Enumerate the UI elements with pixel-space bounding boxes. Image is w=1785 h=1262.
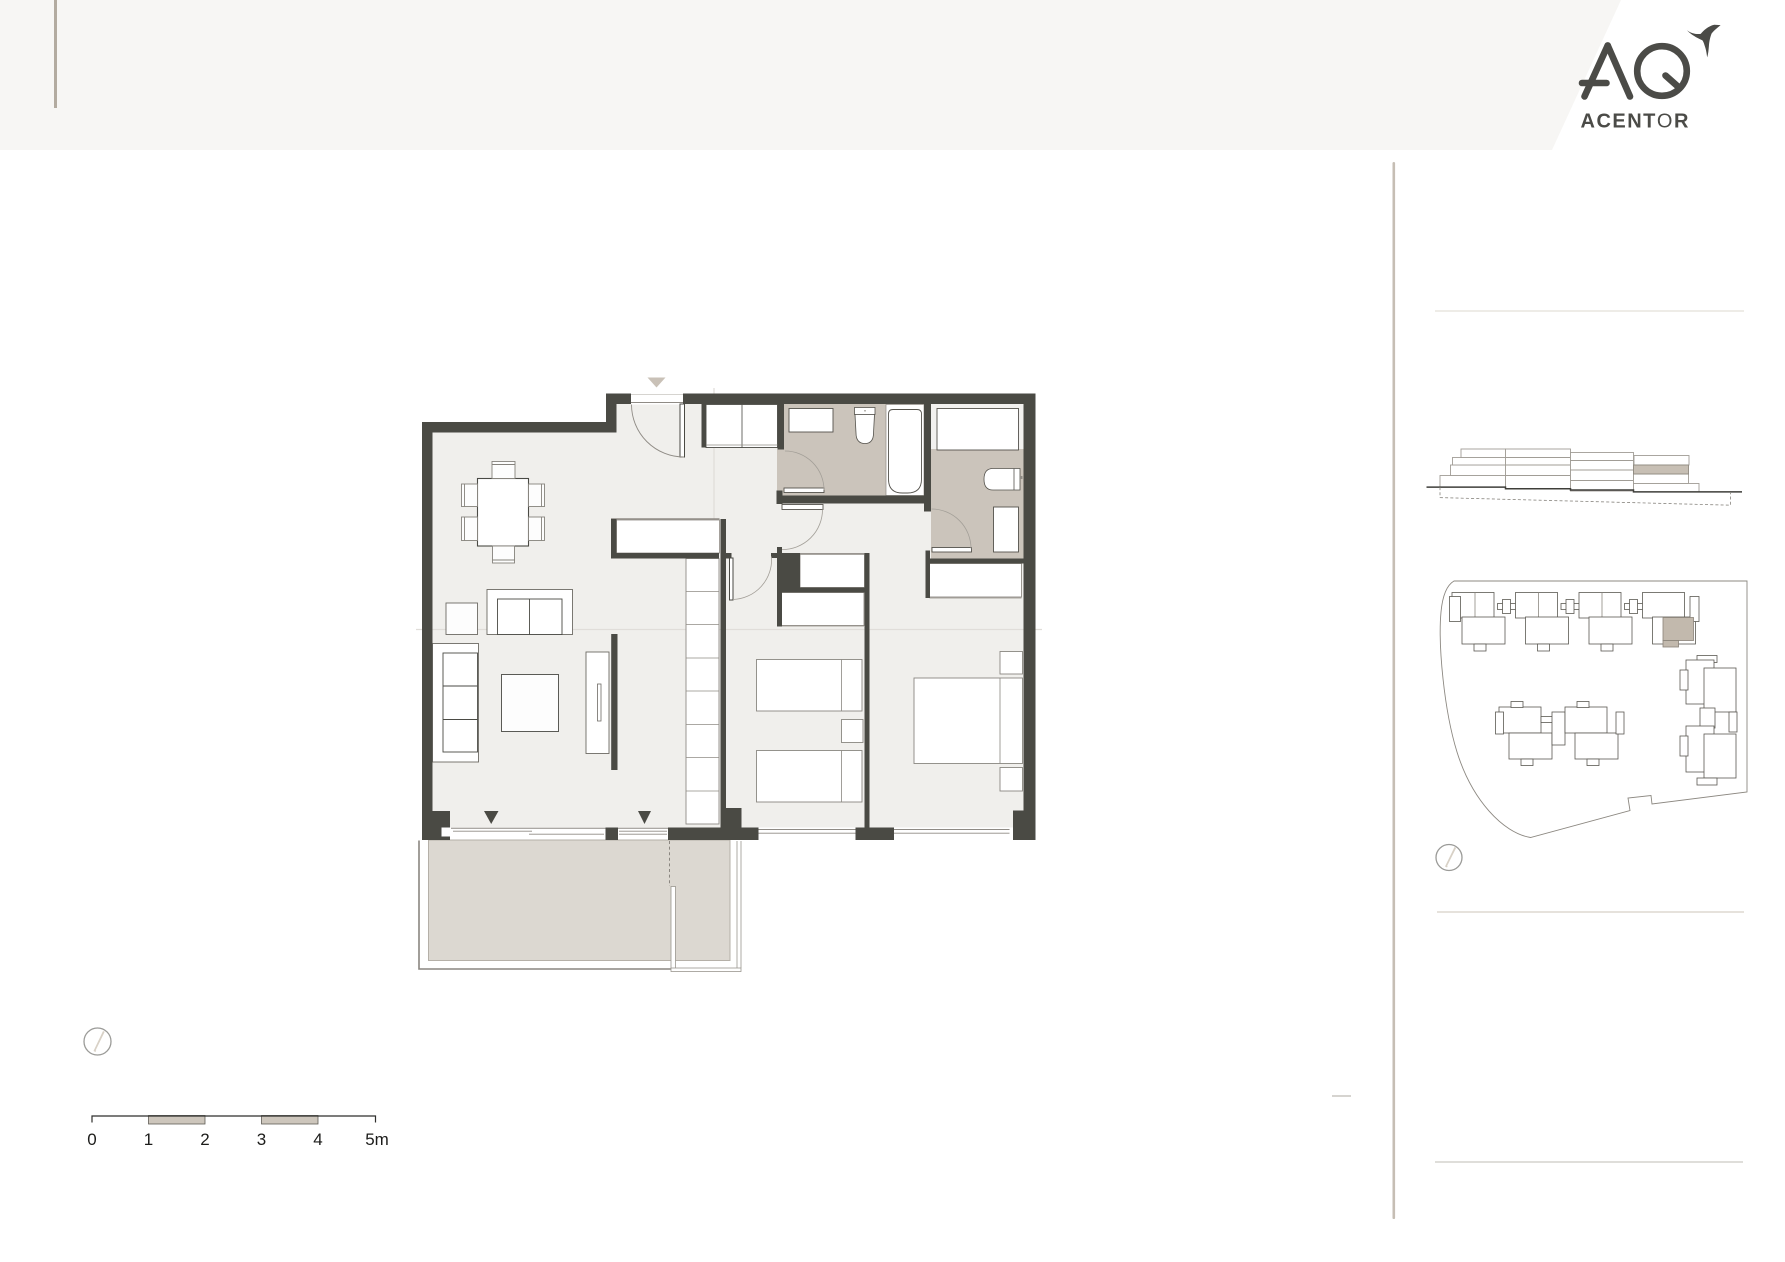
svg-text:4: 4 [313, 1130, 322, 1149]
svg-text:1: 1 [144, 1130, 153, 1149]
svg-text:2: 2 [200, 1130, 209, 1149]
svg-text:3: 3 [257, 1130, 266, 1149]
svg-text:0: 0 [87, 1130, 96, 1149]
svg-text:5m: 5m [365, 1130, 389, 1149]
